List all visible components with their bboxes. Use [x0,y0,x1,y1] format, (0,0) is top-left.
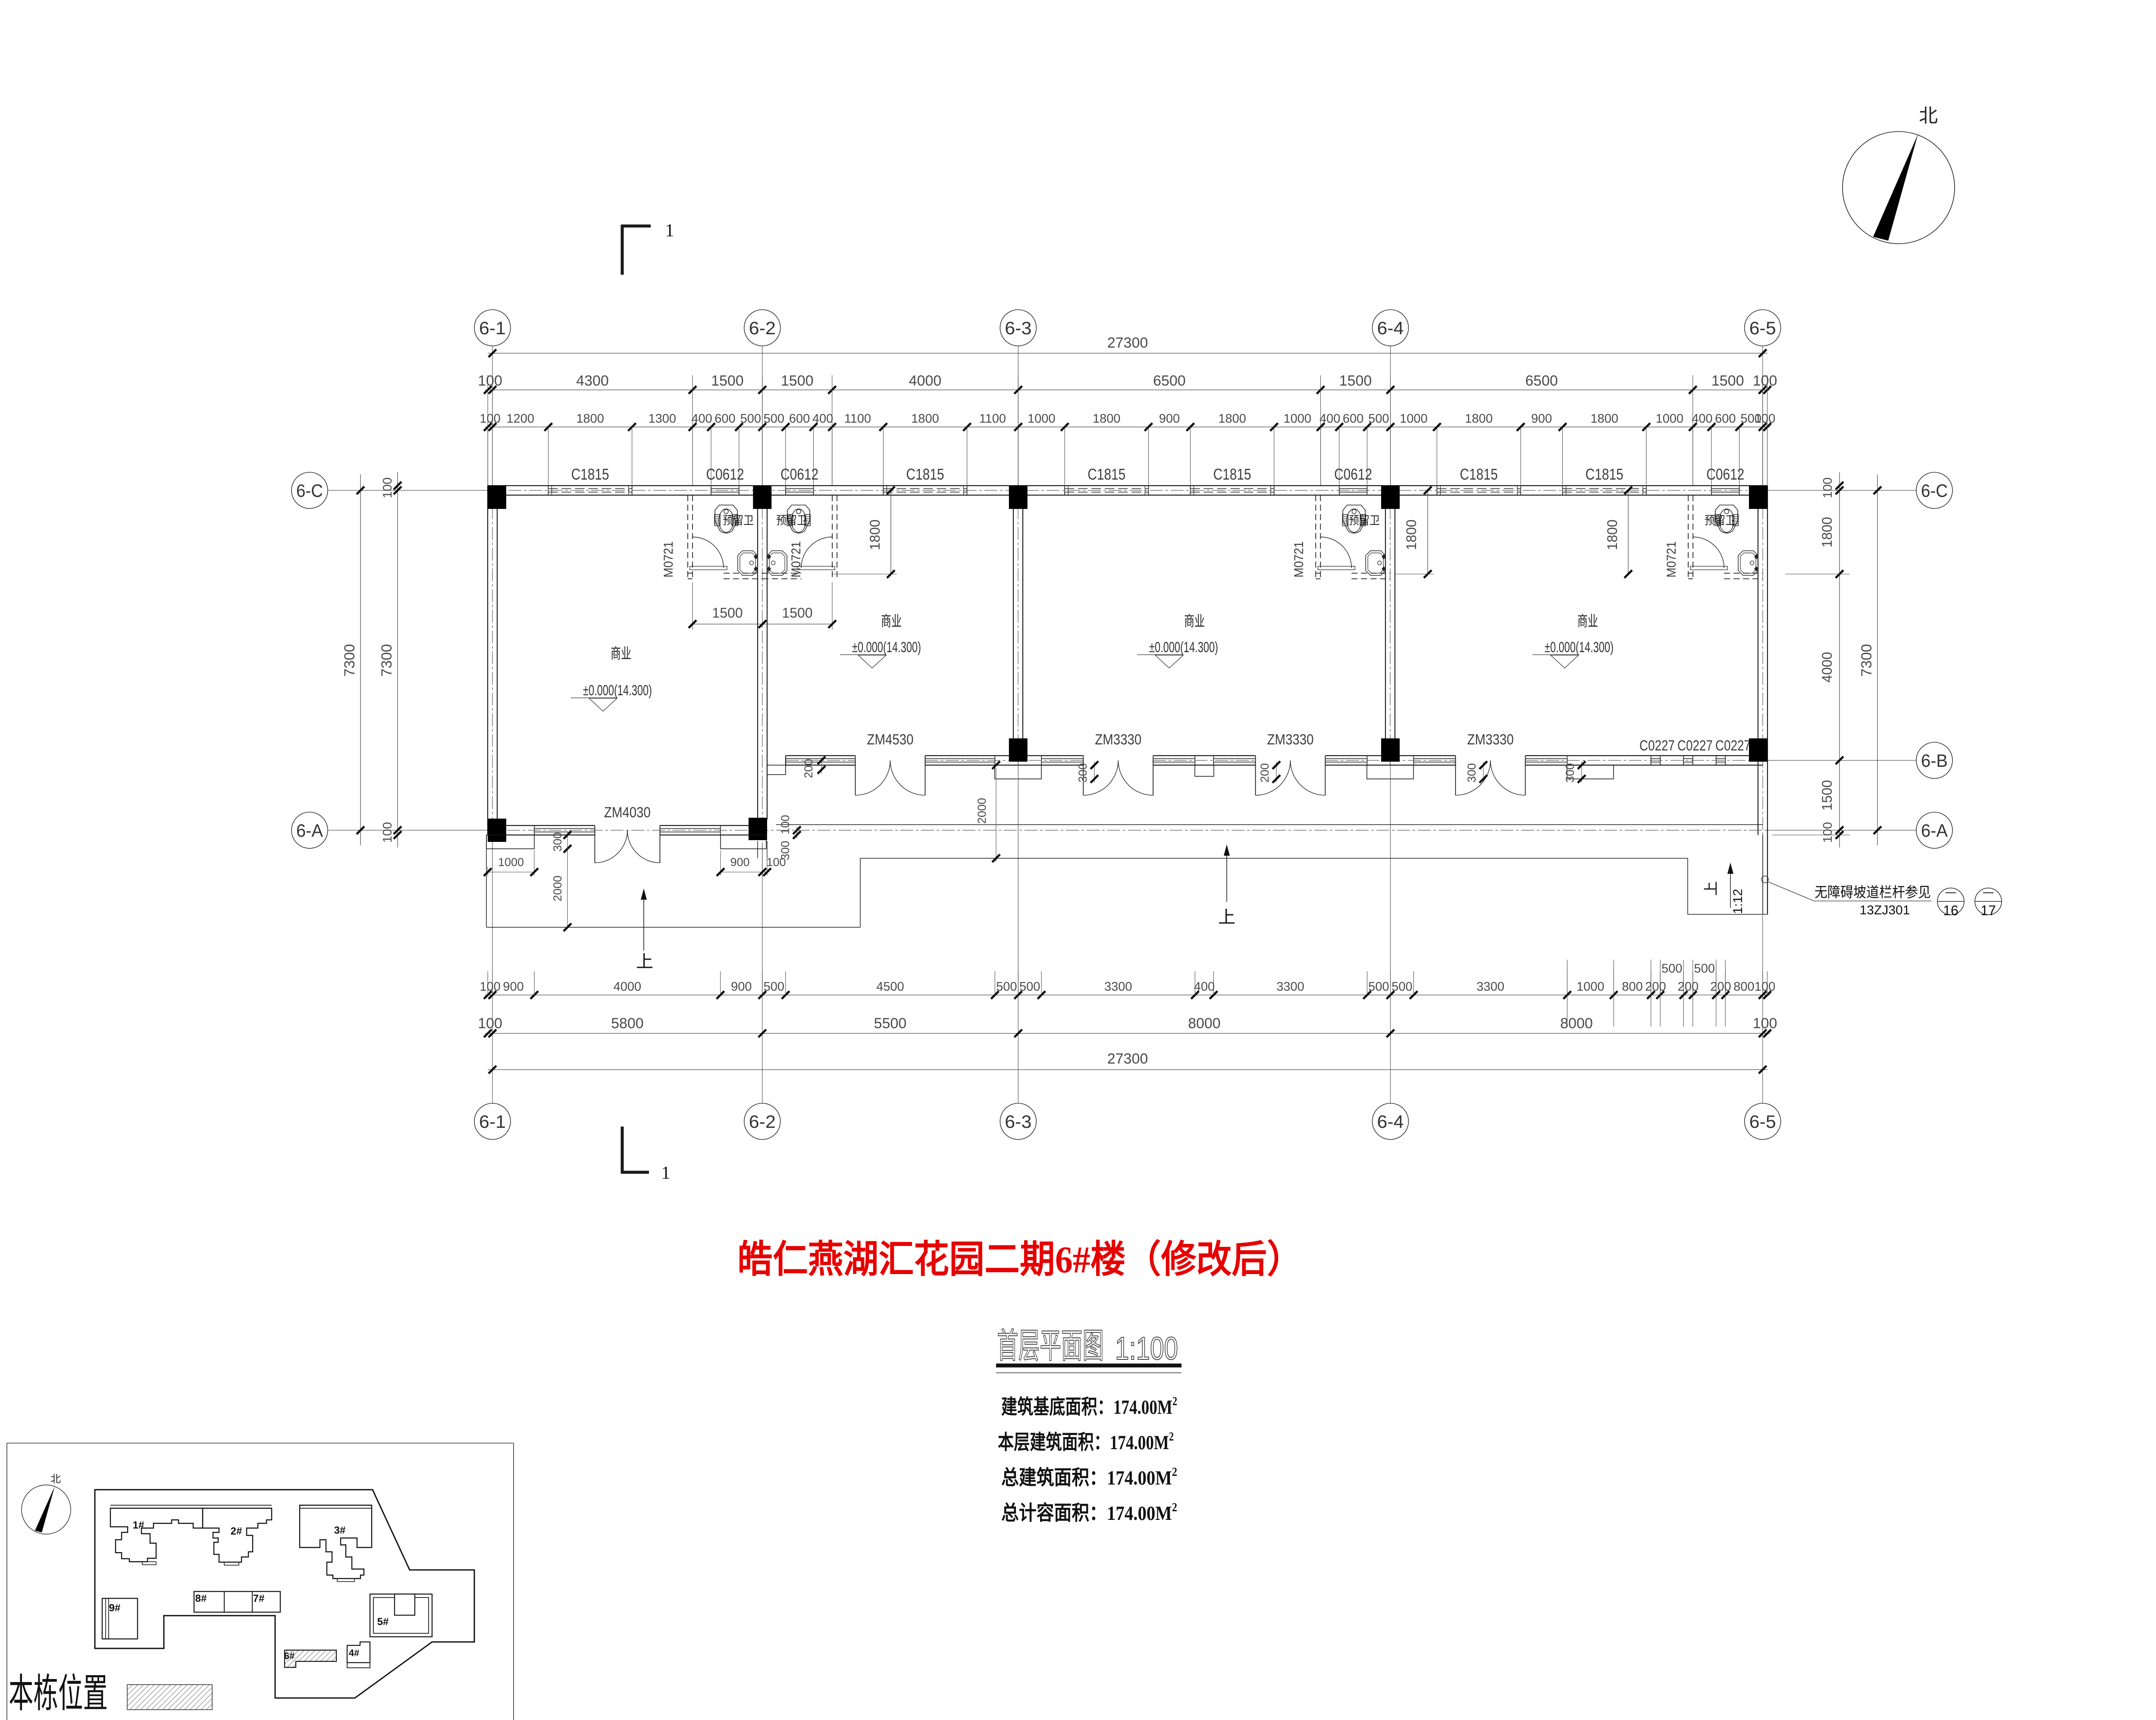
svg-text:4000: 4000 [909,373,942,389]
svg-text:上: 上 [636,952,653,971]
svg-text:1300: 1300 [649,412,677,426]
svg-text:1500: 1500 [1711,373,1744,389]
svg-text:预留卫: 预留卫 [1705,514,1736,527]
svg-text:16: 16 [1943,903,1959,918]
svg-text:3300: 3300 [1476,980,1504,994]
svg-text:100: 100 [479,412,500,426]
svg-text:总计容面积：174.00M2: 总计容面积：174.00M2 [1001,1501,1177,1525]
svg-text:1000: 1000 [1283,412,1311,426]
svg-text:1800: 1800 [1819,517,1835,547]
svg-text:100: 100 [478,1015,502,1032]
svg-text:9#: 9# [109,1602,121,1614]
svg-text:±0.000(14.300): ±0.000(14.300) [1545,639,1614,656]
svg-text:500: 500 [740,412,761,426]
svg-text:1500: 1500 [712,605,743,621]
svg-text:100: 100 [1821,477,1835,498]
svg-text:4000: 4000 [614,980,642,994]
svg-text:6-3: 6-3 [1005,1111,1031,1132]
svg-text:ZM3330: ZM3330 [1267,731,1314,748]
svg-text:建筑基底面积：174.00M2: 建筑基底面积：174.00M2 [1001,1395,1177,1419]
svg-text:6-3: 6-3 [1005,318,1031,338]
svg-text:±0.000(14.300): ±0.000(14.300) [852,639,921,656]
svg-text:1:12: 1:12 [1731,889,1745,914]
svg-text:6-A: 6-A [1921,820,1948,841]
svg-text:1800: 1800 [1591,412,1619,426]
svg-text:商业: 商业 [611,646,631,662]
svg-text:200: 200 [1645,980,1666,994]
svg-text:300: 300 [779,841,792,860]
svg-text:C1815: C1815 [1460,465,1498,483]
svg-text:C0612: C0612 [780,465,818,483]
svg-text:1800: 1800 [1604,519,1620,550]
svg-text:C1815: C1815 [906,465,944,483]
svg-text:300: 300 [1564,763,1576,782]
svg-text:200: 200 [1678,980,1698,994]
svg-text:C1815: C1815 [1087,465,1125,483]
svg-text:400: 400 [812,412,833,426]
svg-text:600: 600 [1343,412,1363,426]
svg-text:800: 800 [1733,980,1754,994]
svg-text:900: 900 [1531,412,1552,426]
svg-text:6-1: 6-1 [479,318,506,338]
svg-text:3300: 3300 [1276,980,1304,994]
svg-text:5#: 5# [377,1616,389,1628]
svg-text:1800: 1800 [867,519,883,550]
svg-text:1500: 1500 [711,373,744,389]
svg-text:C0227: C0227 [1677,738,1713,754]
svg-text:C1815: C1815 [1213,465,1251,483]
svg-text:100: 100 [479,980,500,994]
svg-text:13ZJ301: 13ZJ301 [1860,903,1910,917]
svg-text:500: 500 [1019,980,1040,994]
svg-text:皓仁燕湖汇花园二期6#楼（修改后）: 皓仁燕湖汇花园二期6#楼（修改后） [737,1239,1302,1281]
svg-text:ZM4530: ZM4530 [867,731,914,748]
svg-text:ZM3330: ZM3330 [1467,731,1514,748]
svg-text:8#: 8# [195,1593,207,1604]
svg-text:500: 500 [1368,980,1389,994]
svg-text:900: 900 [730,856,749,869]
svg-text:4300: 4300 [576,373,609,389]
svg-text:400: 400 [1194,980,1215,994]
svg-text:总建筑面积：174.00M2: 总建筑面积：174.00M2 [1001,1466,1177,1489]
svg-text:1000: 1000 [1028,412,1056,426]
svg-text:1800: 1800 [1093,412,1121,426]
svg-text:上: 上 [1218,908,1235,927]
svg-text:17: 17 [1981,903,1996,918]
svg-text:ZM4030: ZM4030 [604,804,651,821]
svg-text:M0721: M0721 [1292,541,1306,578]
svg-text:ZM3330: ZM3330 [1095,731,1141,748]
svg-text:100: 100 [381,822,395,843]
svg-text:6-5: 6-5 [1749,1111,1776,1132]
svg-text:1800: 1800 [1404,519,1419,550]
svg-text:±0.000(14.300): ±0.000(14.300) [583,682,652,699]
svg-text:6-5: 6-5 [1749,318,1776,338]
svg-text:商业: 商业 [1577,613,1598,630]
svg-text:6-A: 6-A [296,820,323,841]
svg-text:200: 200 [802,759,815,778]
svg-text:1800: 1800 [1218,412,1246,426]
svg-text:上: 上 [1703,881,1720,896]
svg-text:无障碍坡道栏杆参见: 无障碍坡道栏杆参见 [1814,884,1931,900]
svg-text:1500: 1500 [781,373,814,389]
svg-text:500: 500 [996,980,1017,994]
svg-text:1200: 1200 [506,412,534,426]
svg-text:1100: 1100 [979,412,1006,426]
svg-text:5500: 5500 [874,1015,907,1032]
svg-text:1000: 1000 [1400,412,1428,426]
svg-text:C1815: C1815 [1586,465,1623,483]
svg-text:500: 500 [1368,412,1389,426]
svg-text:预留卫: 预留卫 [723,514,754,527]
svg-text:400: 400 [1692,412,1712,426]
svg-text:C0227: C0227 [1639,738,1675,754]
svg-text:M0721: M0721 [789,541,803,578]
svg-text:3300: 3300 [1104,980,1132,994]
svg-text:商业: 商业 [881,613,902,630]
svg-text:M0721: M0721 [661,541,676,578]
svg-text:7300: 7300 [1858,644,1875,677]
svg-text:6-1: 6-1 [479,1111,506,1132]
svg-text:27300: 27300 [1107,335,1148,351]
svg-text:4#: 4# [349,1648,359,1658]
svg-text:500: 500 [1694,962,1715,976]
svg-text:±0.000(14.300): ±0.000(14.300) [1149,639,1218,656]
svg-text:1500: 1500 [1819,780,1835,810]
svg-text:预留卫: 预留卫 [1349,514,1380,527]
svg-text:500: 500 [764,412,784,426]
svg-text:2#: 2# [231,1525,242,1537]
svg-text:100: 100 [1753,373,1777,389]
svg-text:1:100: 1:100 [1115,1331,1178,1366]
svg-text:6-2: 6-2 [749,318,776,338]
svg-text:400: 400 [691,412,712,426]
svg-text:1100: 1100 [844,412,871,426]
svg-text:1500: 1500 [782,605,812,621]
svg-text:6500: 6500 [1525,373,1558,389]
svg-text:1800: 1800 [911,412,939,426]
svg-text:本层建筑面积：174.00M2: 本层建筑面积：174.00M2 [998,1430,1174,1454]
svg-text:首层平面图: 首层平面图 [997,1328,1104,1365]
svg-text:6-C: 6-C [1921,480,1948,501]
svg-text:600: 600 [789,412,810,426]
svg-text:C1815: C1815 [571,465,609,483]
svg-text:200: 200 [1710,980,1731,994]
svg-text:100: 100 [1755,412,1775,426]
svg-text:1800: 1800 [1465,412,1493,426]
svg-text:100: 100 [478,373,502,389]
svg-text:4500: 4500 [876,980,904,994]
svg-text:300: 300 [1076,763,1089,782]
svg-text:北: 北 [1919,105,1938,126]
svg-text:100: 100 [1755,980,1775,994]
svg-text:6-C: 6-C [296,480,323,501]
svg-text:500: 500 [1661,962,1682,976]
svg-text:100: 100 [779,815,792,834]
svg-text:300: 300 [1465,763,1478,782]
svg-text:本栋位置: 本栋位置 [9,1672,108,1716]
svg-text:1000: 1000 [498,856,524,869]
svg-text:900: 900 [503,980,523,994]
svg-text:900: 900 [1159,412,1180,426]
svg-text:100: 100 [1821,822,1835,843]
svg-text:6-4: 6-4 [1377,318,1404,338]
svg-text:900: 900 [731,980,752,994]
svg-text:8000: 8000 [1560,1015,1593,1032]
svg-text:1800: 1800 [576,412,604,426]
svg-text:预留卫: 预留卫 [776,514,807,527]
svg-text:600: 600 [1715,412,1736,426]
svg-text:100: 100 [1753,1015,1777,1032]
svg-text:400: 400 [1319,412,1340,426]
svg-text:600: 600 [714,412,735,426]
svg-text:1#: 1# [133,1519,144,1531]
svg-text:1: 1 [661,1163,671,1183]
svg-text:6500: 6500 [1153,373,1186,389]
svg-text:1: 1 [665,221,674,241]
svg-text:6#: 6# [284,1651,295,1661]
svg-text:800: 800 [1622,980,1642,994]
svg-text:200: 200 [1258,763,1271,782]
svg-text:7300: 7300 [342,644,358,677]
svg-text:5800: 5800 [611,1015,644,1032]
svg-text:2000: 2000 [975,798,988,824]
svg-text:500: 500 [1391,980,1412,994]
svg-text:27300: 27300 [1107,1051,1148,1067]
svg-text:300: 300 [551,832,564,851]
svg-text:北: 北 [50,1473,61,1485]
svg-text:1000: 1000 [1576,980,1604,994]
svg-text:6-2: 6-2 [749,1111,776,1132]
svg-text:M0721: M0721 [1664,541,1679,578]
svg-text:C0612: C0612 [706,465,744,483]
svg-text:8000: 8000 [1188,1015,1221,1032]
svg-text:C0227: C0227 [1715,738,1751,754]
svg-text:C0612: C0612 [1334,465,1372,483]
svg-text:100: 100 [381,477,395,498]
svg-text:6-B: 6-B [1921,750,1948,771]
svg-text:1500: 1500 [1339,373,1372,389]
svg-text:7300: 7300 [379,644,395,677]
svg-text:4000: 4000 [1819,652,1835,682]
svg-text:500: 500 [764,980,784,994]
svg-text:C0612: C0612 [1706,465,1744,483]
svg-text:商业: 商业 [1184,613,1205,630]
svg-text:3#: 3# [334,1525,346,1536]
svg-text:7#: 7# [253,1593,265,1604]
svg-text:2000: 2000 [551,876,564,901]
svg-text:1000: 1000 [1656,412,1684,426]
svg-text:6-4: 6-4 [1377,1111,1404,1132]
